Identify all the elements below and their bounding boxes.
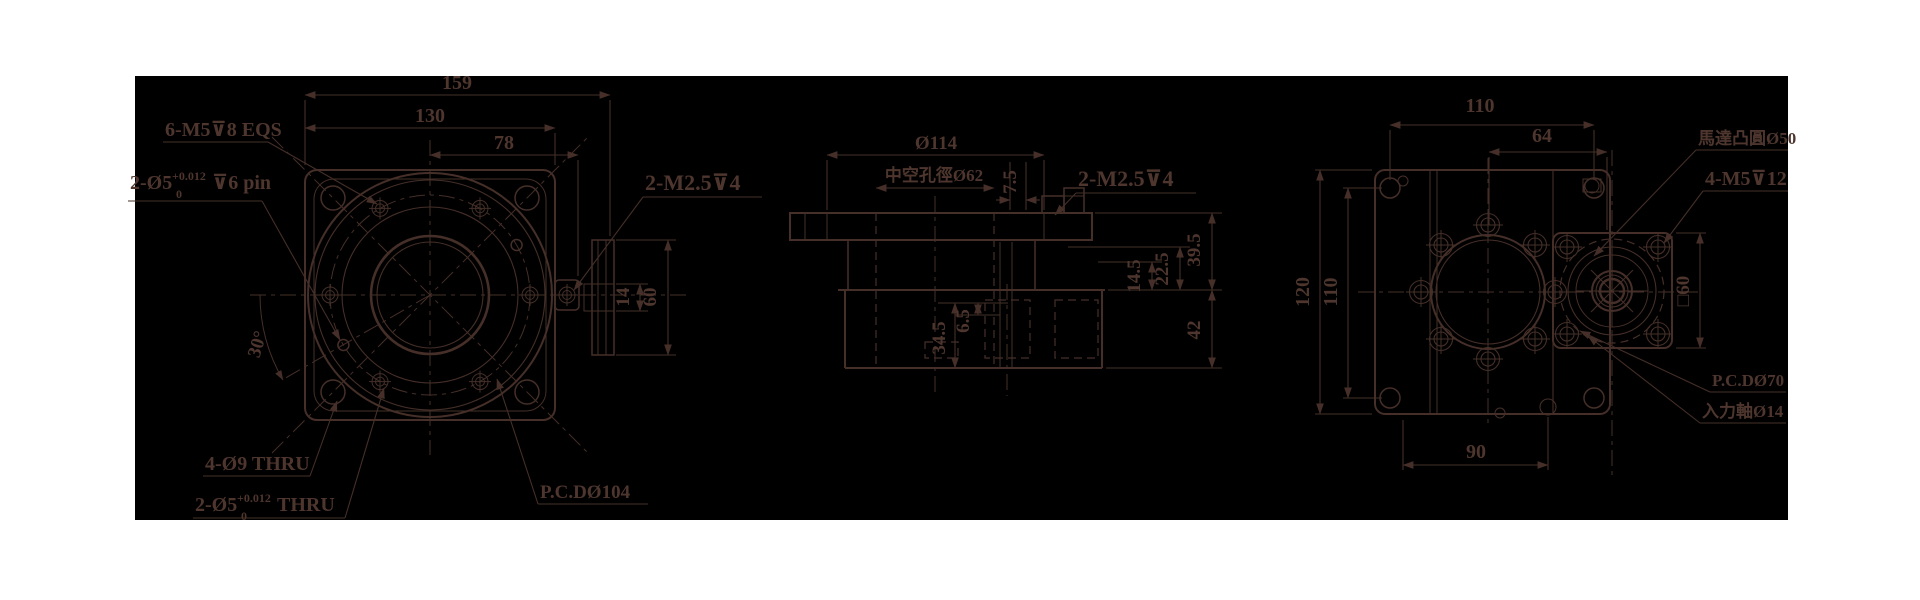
side-dim-motor-square: □60	[1673, 276, 1694, 306]
front-label-taps: 6-M5⊽8 EQS	[165, 119, 282, 141]
section-dim-side-height: 34.5	[929, 321, 950, 354]
front-label-tab-taps: 2-M2.5⊽4	[645, 170, 740, 195]
front-label-pin-suffix: ⊽6 pin	[212, 172, 271, 194]
front-label-bolt-circle: P.C.DØ104	[540, 482, 631, 503]
side-dim-body-height: 120	[1292, 277, 1314, 307]
front-label-pin-tol-upper: +0.012	[172, 169, 206, 183]
front-label-pin-tol-lower: 0	[176, 187, 182, 201]
side-dim-hole-span-h: 110	[1320, 278, 1342, 307]
cad-drawing-svg: 30° 159 130 78 14 60 6-M5⊽8 EQS 2-Ø5 +0.…	[0, 0, 1920, 600]
side-label-motor-boss: 馬達凸圓Ø50	[1698, 129, 1796, 148]
front-dim-overall: 159	[442, 72, 472, 94]
cad-drawing-stage: 30° 159 130 78 14 60 6-M5⊽8 EQS 2-Ø5 +0.…	[0, 0, 1920, 600]
front-label-thru-prefix: 2-Ø5	[195, 494, 237, 516]
front-label-thru-tol-lower: 0	[241, 509, 247, 523]
front-label-pin-prefix: 2-Ø5	[130, 172, 172, 194]
front-label-thru-tol-upper: +0.012	[237, 491, 271, 505]
front-label-corner-holes: 4-Ø9 THRU	[205, 453, 310, 475]
front-label-thru-suffix: THRU	[277, 494, 335, 516]
section-dim-side-step: 6.5	[953, 309, 974, 333]
section-dim-tab-offset: 7.5	[1000, 170, 1021, 194]
section-dim-step2: 22.5	[1152, 252, 1173, 285]
front-dim-flange: 130	[415, 105, 445, 127]
side-label-motor-taps: 4-M5⊽12	[1705, 168, 1787, 190]
side-dim-motor-span: 64	[1532, 125, 1552, 147]
section-dim-lower-height: 42	[1184, 321, 1205, 340]
front-dim-plate: 60	[640, 288, 661, 307]
section-dim-bore: 中空孔徑Ø62	[885, 165, 983, 185]
section-dim-upper-height: 39.5	[1184, 233, 1205, 266]
front-dim-half: 78	[494, 132, 514, 154]
side-dim-hole-span-w: 110	[1466, 95, 1495, 117]
section-dim-flange-dia: Ø114	[915, 133, 958, 154]
section-dim-step1: 14.5	[1124, 259, 1145, 292]
side-label-motor-pcd: P.C.DØ70	[1712, 371, 1784, 390]
side-dim-bottom-span: 90	[1466, 441, 1486, 463]
side-label-input-shaft: 入力軸Ø14	[1702, 401, 1784, 421]
section-label-tab-taps: 2-M2.5⊽4	[1078, 166, 1173, 191]
front-dim-tab: 14	[613, 287, 634, 307]
